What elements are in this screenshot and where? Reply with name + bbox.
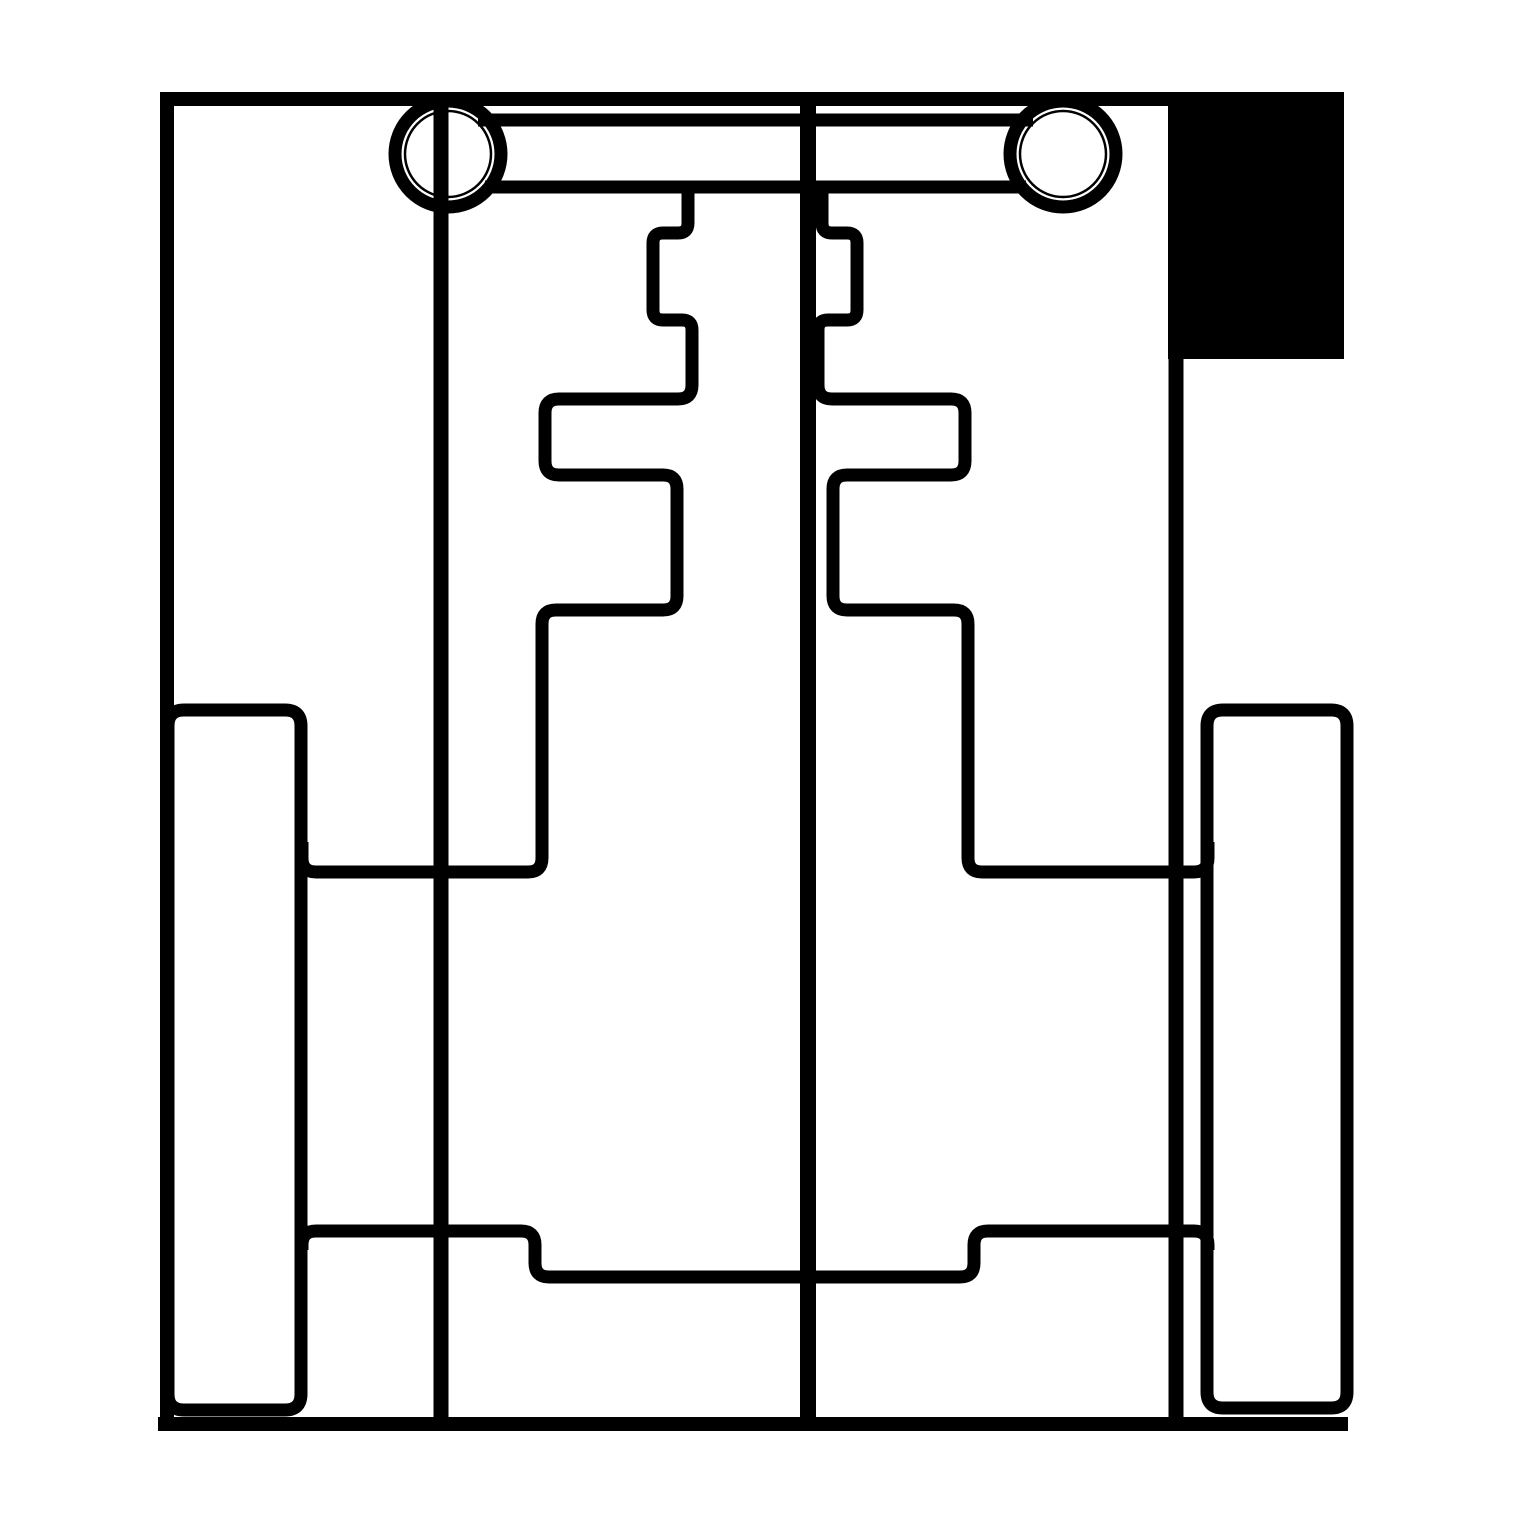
right-hub-inner-circle xyxy=(1020,111,1106,197)
technical-drawing-canvas xyxy=(0,0,1519,1519)
left-stepped-bracket xyxy=(302,187,692,872)
solid-black-block xyxy=(1168,92,1344,359)
right-hub-ring xyxy=(1010,101,1116,207)
right-stepped-bracket xyxy=(818,187,1208,872)
right-wheel-outline xyxy=(1207,710,1347,1408)
left-wheel-outline xyxy=(168,710,301,1410)
drawing-stage xyxy=(0,0,1519,1519)
